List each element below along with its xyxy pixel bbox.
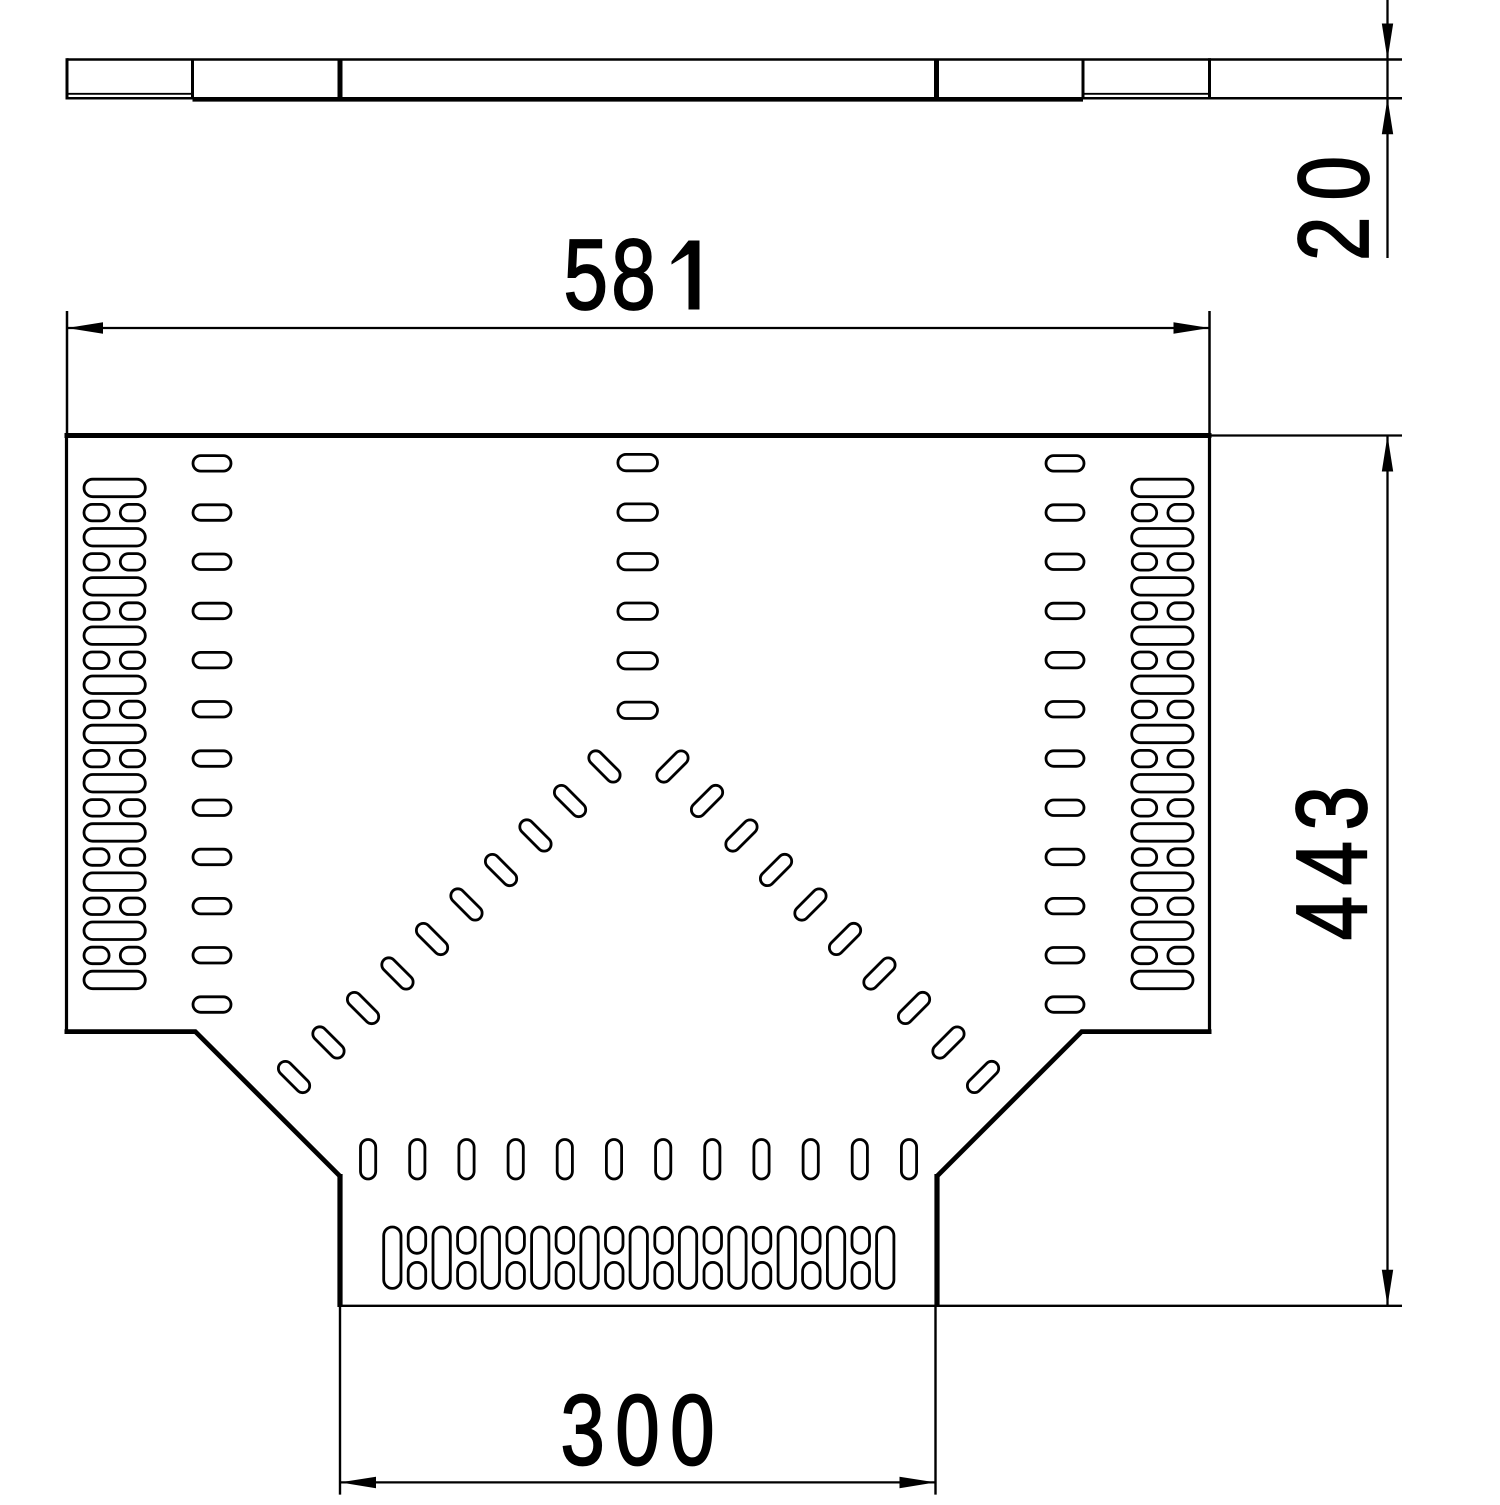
svg-text:443: 443 [1277,776,1389,941]
svg-text:20: 20 [1279,140,1391,261]
svg-text:58: 58 [564,220,659,332]
svg-text:300: 300 [560,1375,725,1487]
